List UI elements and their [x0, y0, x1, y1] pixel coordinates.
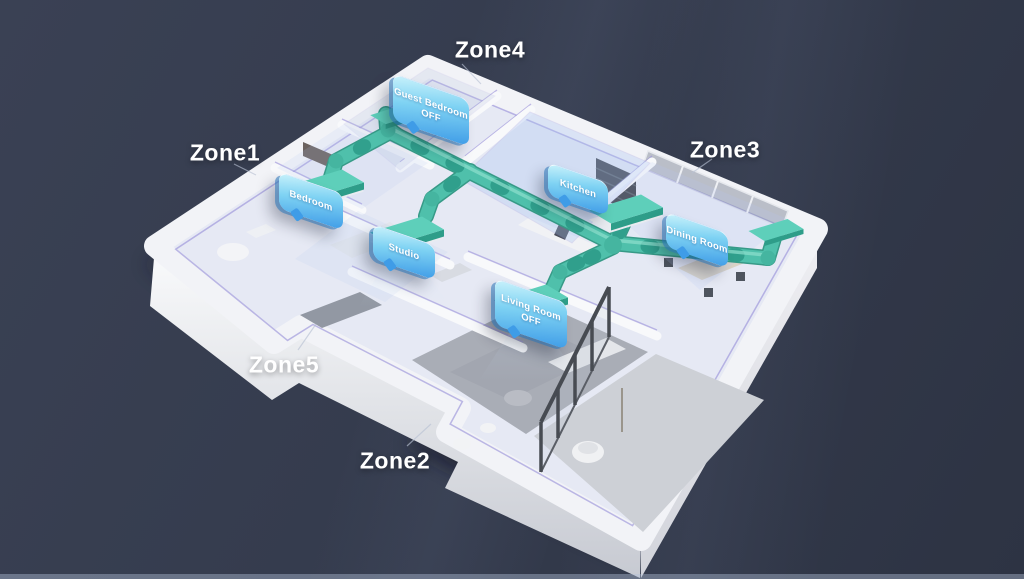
dining-chair [704, 288, 713, 297]
room-tag-label: Kitchen [560, 177, 596, 202]
room-tag-label: Bedroom [289, 188, 332, 215]
bottom-edge-bar [0, 574, 1024, 579]
scene-canvas: Zone4 Zone1 Zone3 Zone5 Zone2 Guest Bedr… [0, 0, 1024, 579]
bathtub [217, 243, 249, 261]
stool [453, 438, 471, 450]
zone-label-zone2: Zone2 [360, 448, 430, 475]
zone-label-zone3: Zone3 [690, 137, 760, 164]
zone-label-zone4: Zone4 [455, 37, 525, 64]
zone-label-zone5: Zone5 [249, 352, 319, 379]
dining-chair [736, 272, 745, 281]
balcony-armchair-seat [578, 442, 598, 454]
room-tag-label: Studio [389, 241, 420, 264]
zone-label-zone1: Zone1 [190, 140, 260, 167]
stool [480, 423, 496, 433]
coffee-table [504, 390, 532, 406]
